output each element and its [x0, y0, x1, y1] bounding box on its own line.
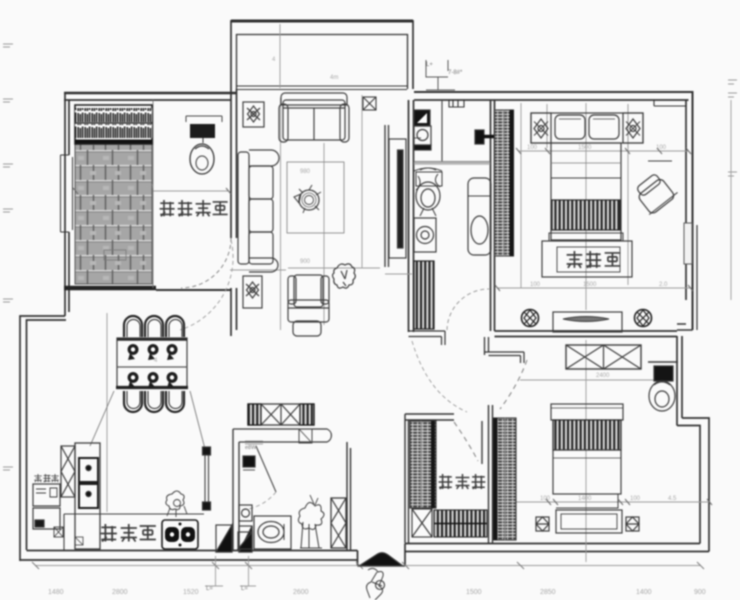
- svg-text:2850: 2850: [540, 589, 556, 596]
- svg-text:100: 100: [527, 145, 538, 151]
- svg-text:900: 900: [300, 259, 311, 265]
- svg-text:L=: L=: [241, 586, 248, 592]
- svg-text:4.5: 4.5: [668, 496, 677, 502]
- svg-text:e8W: e8W: [245, 445, 257, 451]
- svg-text:L+: L+: [426, 62, 433, 68]
- svg-text:L=: L=: [206, 586, 213, 592]
- svg-text:100: 100: [540, 496, 551, 502]
- svg-text:4m: 4m: [145, 184, 153, 190]
- svg-text:2.0: 2.0: [659, 282, 668, 288]
- svg-text:2600: 2600: [293, 589, 309, 596]
- svg-text:4m: 4m: [330, 75, 338, 81]
- svg-text:100: 100: [630, 496, 641, 502]
- svg-text:1500: 1500: [466, 589, 482, 596]
- svg-text:1520: 1520: [183, 589, 199, 596]
- svg-text:2800: 2800: [112, 589, 128, 596]
- svg-text:1400: 1400: [636, 589, 652, 596]
- svg-text:1500: 1500: [578, 145, 592, 151]
- svg-text:980: 980: [300, 169, 311, 175]
- svg-text:900: 900: [694, 589, 706, 596]
- svg-text:1480: 1480: [48, 589, 64, 596]
- svg-text:1400: 1400: [578, 496, 592, 502]
- svg-text:7-8#*: 7-8#*: [448, 70, 463, 76]
- svg-text:2400: 2400: [596, 373, 610, 379]
- svg-text:100: 100: [530, 282, 541, 288]
- svg-text:1500: 1500: [583, 282, 597, 288]
